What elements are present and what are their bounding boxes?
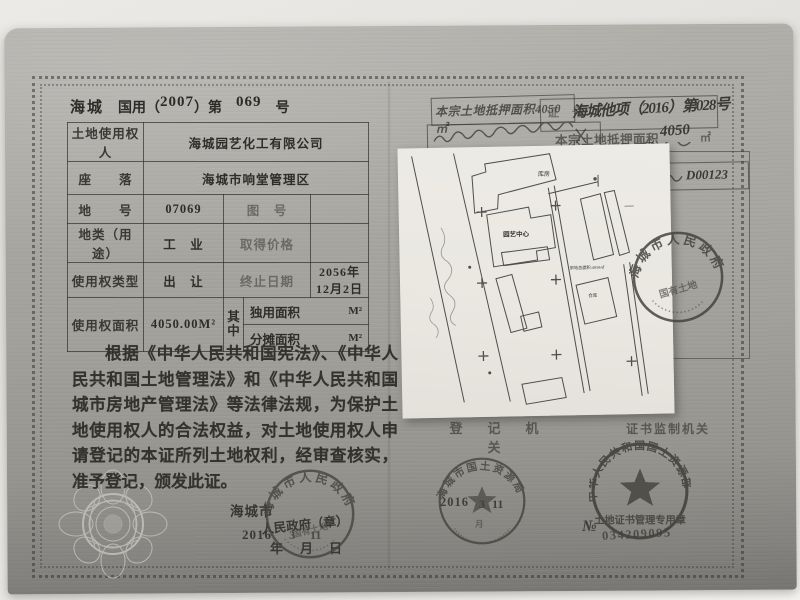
svg-text:海城市人民政府: 海城市人民政府 — [629, 232, 727, 279]
certificate-no-prefix: № — [582, 518, 597, 536]
field-value-location: 海城市响堂管理区 — [144, 162, 369, 195]
field-value-acquire-price — [311, 224, 369, 263]
field-sole-area: 独用面积M² — [244, 298, 369, 325]
svg-text:国有土地: 国有土地 — [657, 277, 698, 300]
supervisor-authority-header: 证书监制机关 — [626, 420, 746, 437]
field-label-location: 座 落 — [68, 162, 144, 195]
gov-stamp-on-map: 海城市人民政府 国有土地 — [629, 228, 727, 326]
gov-stamp-issue: 海城市人民政府 国有土地 — [262, 466, 358, 562]
bureau-date-month: 3 — [479, 497, 485, 512]
table-row: 使用权面积 4050.00M² 其中 独用面积M² — [68, 298, 369, 325]
field-label-map-no: 图 号 — [224, 195, 311, 224]
map-dash-mark: — — [623, 200, 634, 210]
serial-type-label: 国用（ — [118, 101, 160, 116]
svg-text:国有土地: 国有土地 — [291, 520, 329, 539]
field-label-sole-area: 独用面积 — [250, 302, 300, 321]
field-label-parcel-no: 地 号 — [68, 195, 144, 224]
registry-authority-header: 登 记 机 关 — [432, 418, 562, 456]
field-label-acquire-price: 取得价格 — [224, 224, 311, 263]
map-label-warehouse: 库房 — [538, 170, 550, 178]
field-value-right-type: 出 让 — [144, 263, 224, 298]
right-note-value: D00123 — [686, 167, 728, 184]
field-value-parcel-no: 07069 — [144, 195, 224, 224]
field-value-land-class: 工 业 — [144, 224, 224, 263]
land-use-table: 土地使用权人 海城园艺化工有限公司 座 落 海城市响堂管理区 地 号 07069… — [67, 122, 369, 352]
table-row: 土地使用权人 海城园艺化工有限公司 — [68, 123, 369, 162]
field-label-right-type: 使用权类型 — [68, 263, 144, 298]
serial-mid-label: ）第 — [194, 101, 222, 116]
map-label-storage: 仓库 — [588, 292, 598, 299]
field-value-map-no — [311, 195, 369, 224]
field-label-rights-holder: 土地使用权人 — [68, 123, 144, 162]
table-row: 座 落 海城市响堂管理区 — [68, 162, 369, 195]
map-label-area: 宗地总面积:4050㎡ — [570, 264, 606, 272]
bureau-date-day: 11 — [492, 497, 503, 512]
certificate-photo: 海城国用（2007）第 069 号 土地使用权人 海城园艺化工有限公司 座 落 … — [0, 0, 800, 600]
svg-text:土地证书管理专用章: 土地证书管理专用章 — [594, 514, 686, 527]
field-unit-sole-area: M² — [348, 305, 362, 317]
serial-region: 海城 — [70, 100, 104, 116]
serial-suffix: 号 — [276, 101, 290, 116]
field-label-end-date: 终止日期 — [224, 263, 311, 298]
table-row: 地 号 07069 图 号 — [68, 195, 369, 224]
map-label-center: 园艺中心 — [503, 229, 530, 239]
field-value-end-date: 2056年12月2日 — [311, 263, 369, 298]
serial-year: 2007 — [160, 94, 194, 110]
field-value-rights-holder: 海城园艺化工有限公司 — [144, 123, 369, 162]
svg-text:月: 月 — [474, 520, 483, 529]
serial-number: 069 — [236, 94, 262, 110]
mortgage-area-line-number: 4050 — [659, 122, 690, 141]
table-row: 地类（用途） 工 业 取得价格 — [68, 224, 369, 263]
certificate-serial-line: 海城国用（2007）第 069 号 — [70, 96, 370, 117]
table-row: 使用权类型 出 让 终止日期 2056年12月2日 — [68, 263, 369, 298]
svg-text:海城市人民政府: 海城市人民政府 — [262, 469, 358, 517]
center-fold-crease — [388, 82, 390, 570]
field-label-land-class: 地类（用途） — [68, 224, 144, 263]
right-note-box: D00123 — [659, 161, 749, 191]
bureau-date-year: 2016 — [440, 495, 469, 510]
